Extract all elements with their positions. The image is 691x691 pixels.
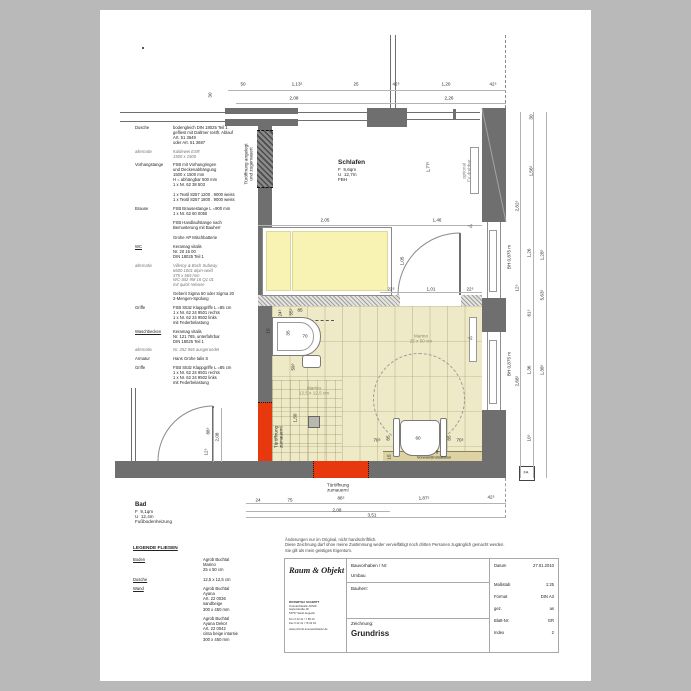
spec-section: VorhangstangeFSB mit Vorhangringenund De… — [135, 163, 255, 202]
spec-label: WC — [135, 245, 173, 260]
dim-label: 12⁵ — [515, 284, 520, 291]
dim-line — [221, 408, 222, 462]
project-value: Umbau — [351, 573, 366, 578]
legend-row: WandAgrob BuchtalAyanaArt. 22 0036sandbe… — [133, 586, 253, 612]
dim-label: 5,63⁵ — [540, 290, 545, 301]
spec-section: GriffeFSB Stütz Klappgriffe L =85 cm1 x … — [135, 366, 255, 386]
dim-label: 75 — [287, 498, 292, 503]
wall-top-upper — [225, 108, 298, 114]
spec-column: Duschebodengleich DIN 18025 Teil 1geflie… — [135, 126, 255, 390]
dim-label: 1,20 — [442, 82, 451, 87]
bricked-door-hatch — [257, 130, 273, 188]
dim-label: 1,36 — [527, 366, 532, 375]
dim-label: 2,26 — [445, 96, 454, 101]
dim-label: 61⁵ — [527, 309, 532, 316]
dim-label: 88⁵ — [337, 496, 344, 501]
dim-label: 85 — [447, 435, 452, 440]
wall-red-close-door-south — [313, 461, 369, 478]
spec-section: Geberit Sigma 50 oder Sigma 202-Mengen-S… — [135, 292, 255, 302]
tile-legend: LEGENDE FLIESEN BodenAgrob BuchtalMarino… — [133, 546, 253, 646]
spec-value: Nr. 252 065 ausgerundet — [173, 348, 255, 353]
dim-label: 1,46 — [433, 218, 442, 223]
dim-label: 1,05 — [400, 257, 405, 266]
dim-label: 15 — [266, 328, 271, 333]
spec-section: BrauseFSB Brausestange L =900 mm1 x Nr. … — [135, 207, 255, 241]
title-block: Raum & Objekt ROSWITHA SCHMITTInnenarchi… — [284, 558, 559, 653]
dim-label: 3,51 — [368, 513, 377, 518]
corridor-thin-wall — [135, 388, 136, 461]
dim-label: 1,38⁵ — [540, 365, 545, 376]
dim-label: 55⁵ — [289, 308, 294, 315]
spec-value: bodengleich DIN 18025 Teil 1gefliest mit… — [173, 126, 255, 146]
dim-label: 59⁵ — [291, 363, 296, 370]
window-line — [298, 112, 367, 113]
firm-logo: Raum & Objekt — [289, 565, 344, 575]
window-mullion — [453, 109, 456, 120]
dim-label: 12⁵ — [204, 448, 209, 455]
new-wall-hatched-right — [461, 295, 482, 306]
spec-label: Griffe — [135, 366, 173, 386]
new-wall-hatched-left — [258, 295, 400, 306]
dim-line — [246, 503, 506, 504]
spec-value: FSB Brausestange L =900 mm1 x Nr. 62 60 … — [173, 207, 255, 241]
wall-diagonal-mark — [482, 108, 506, 222]
wc-grab-bar-left — [393, 418, 400, 457]
spec-label: Griffe — [135, 306, 173, 326]
dim-label: 24⁵ — [278, 309, 283, 316]
legend-title: LEGENDE FLIESEN — [133, 546, 253, 551]
drawing-label: Zeichnung: — [351, 621, 373, 626]
floor-drain — [308, 416, 320, 428]
spec-value: Hans Grohe talis S — [173, 357, 255, 362]
page-mark-dot — [142, 47, 144, 49]
spec-value: FSB mit Vorhangringenund Deckenabhängung… — [173, 163, 255, 202]
wall-line — [120, 121, 225, 122]
dim-label: BH 0,875 m — [507, 352, 512, 376]
wall-stub-above — [390, 35, 391, 108]
spec-section: alternativKaldewei ESR1500 x 1500 — [135, 150, 255, 160]
construction-dashed-line — [505, 478, 506, 518]
wall-stub-above — [395, 35, 396, 108]
dim-label: 60 — [415, 436, 420, 441]
bed-mattress — [292, 231, 388, 291]
window-leaf — [489, 340, 497, 404]
wall-pillar-top — [367, 108, 407, 127]
project-label: Bauvorhaben / Nr: — [351, 563, 388, 568]
legend-row: Agrob BuchtalAyana DekorArt. 22 0042cint… — [133, 616, 253, 642]
spec-value: Kaldewei ESR1500 x 1500 — [173, 150, 255, 160]
plan-note: Marino 25 x 50 cm — [410, 334, 432, 345]
dim-label: 30 — [529, 114, 534, 119]
window-line — [407, 112, 480, 113]
spec-value: Villeroy & Boch Subway6600 1001 alpin-we… — [173, 264, 255, 289]
bed-pillow — [266, 231, 291, 291]
dim-label: 25 — [353, 82, 358, 87]
dim-label: 22⁵ — [387, 287, 394, 292]
spec-label: alternativ — [135, 348, 173, 353]
title-block-field: Blatt-Nr:GR — [490, 618, 558, 623]
dim-label: 88⁵ — [206, 427, 211, 434]
plan-note: Vorwandinstallation — [417, 454, 451, 459]
room-name: Schlafen — [338, 159, 365, 167]
wall-top-lower — [225, 119, 298, 126]
dim-label: 1,13⁵ — [292, 82, 303, 87]
washbasin-bowl — [277, 322, 314, 351]
dim-line — [258, 225, 482, 226]
spec-label: Brause — [135, 207, 173, 241]
wall-south-band — [115, 461, 506, 478]
drawing-canvas: Schlafen F 9,6qm U 12,7m FBH Bad F 9,1qm… — [0, 0, 691, 691]
dim-label: 50 — [240, 82, 245, 87]
title-block-field: FormatDIN A3 — [490, 594, 558, 599]
plan-note: Marino 12,5 x 12,5 cm — [299, 386, 329, 397]
plan-note: Türöffnung zumauern! — [274, 426, 285, 448]
window-line — [500, 222, 501, 298]
dim-label: 70 — [302, 334, 307, 339]
plan-note: optional TV drehbar — [462, 160, 473, 183]
plan-note: Türöffnung zumauern! — [327, 483, 349, 494]
dim-label: 30 — [208, 92, 213, 97]
window-line — [298, 120, 367, 121]
spec-label: alternativ — [135, 150, 173, 160]
wall-line — [120, 112, 225, 113]
firm-address: ROSWITHA SCHMITTInnenarchitektin AKNWGar… — [289, 601, 328, 632]
drawing-title: Grundriss — [351, 629, 389, 638]
title-block-project: Bauvorhaben / Nr: Umbau Bauherr: Zeichnu… — [346, 559, 489, 652]
legend-row: BodenAgrob BuchtalMarino25 x 50 cm — [133, 557, 253, 573]
spec-value: FSB Stütz Klappgriffe L =85 cm1 x Nr. 62… — [173, 366, 255, 386]
dim-label: 1,28⁵ — [540, 250, 545, 261]
dim-label: 1,56⁵ — [529, 166, 534, 177]
title-block-field: gez.as — [490, 606, 558, 611]
spec-label: Waschbecken — [135, 330, 173, 345]
dim-label: 24 — [255, 498, 260, 503]
window-line — [487, 332, 488, 410]
paper-holder — [302, 355, 321, 368]
window-line — [487, 222, 488, 298]
window-line — [407, 119, 480, 120]
legend-row: Dusche12,5 x 12,5 cm — [133, 577, 253, 582]
disclaimer-text: Änderungen nur im Original, nicht handsc… — [285, 537, 557, 553]
spec-value: Keramag vitalisNr. 20 15 00DIN 18025 Tei… — [173, 245, 255, 260]
spec-label: Dusche — [135, 126, 173, 146]
title-block-divider — [346, 582, 489, 583]
corridor-thin-wall — [131, 388, 132, 461]
dim-label: 70⁵ — [373, 438, 380, 443]
spec-value: Keramag vitalisNr. 121 765, unterfahrbar… — [173, 330, 255, 345]
dim-label: 85 — [386, 435, 391, 440]
dim-label: 2,08 — [215, 433, 220, 442]
window-line — [500, 332, 501, 410]
dim-label: 15 — [387, 454, 392, 459]
room-note: Fußbodenheizung — [135, 519, 172, 524]
dim-label: ~2 — [467, 336, 472, 341]
dim-line — [546, 112, 547, 478]
plan-note: FA — [524, 469, 529, 474]
spec-section: alternativVilleroy & Boch Subway6600 100… — [135, 264, 255, 289]
spec-value: FSB Stütz Klappgriffe L =85 cm1 x Nr. 62… — [173, 306, 255, 326]
dim-label: 1,77⁵ — [426, 162, 431, 173]
window-leaf — [489, 230, 497, 292]
wall-east-bottom — [482, 410, 506, 463]
dim-label: 42⁵ — [487, 495, 494, 500]
dim-label: 1,87⁵ — [419, 496, 430, 501]
room-note: FBH — [338, 177, 365, 182]
spec-section: alternativNr. 252 065 ausgerundet — [135, 348, 255, 353]
dim-line — [236, 103, 506, 104]
dim-label: 35 — [286, 330, 291, 335]
spec-value: Geberit Sigma 50 oder Sigma 202-Mengen-S… — [173, 292, 255, 302]
client-label: Bauherr: — [351, 586, 368, 591]
dim-label: 2,08 — [333, 508, 342, 513]
spec-section: Duschebodengleich DIN 18025 Teil 1geflie… — [135, 126, 255, 146]
dim-line — [380, 292, 482, 293]
dim-label: 22⁵ — [466, 287, 473, 292]
spec-label: Armatur — [135, 357, 173, 362]
dim-label: ~2 — [467, 224, 472, 229]
spec-label: Vorhangstange — [135, 163, 173, 202]
construction-dashed-line — [505, 35, 506, 108]
dim-label: 1,26 — [527, 249, 532, 258]
dim-label: 2,82⁵ — [515, 201, 520, 212]
dim-label: 10⁵ — [527, 434, 532, 441]
wall-red-close-door-west — [258, 402, 272, 463]
dim-label: 85 — [297, 308, 302, 313]
spec-section: WCKeramag vitalisNr. 20 15 00DIN 18025 T… — [135, 245, 255, 260]
dim-label: 42⁵ — [489, 82, 496, 87]
dim-line — [520, 112, 521, 478]
dim-label: BH 0,875 m — [507, 245, 512, 269]
dim-label: 2,05 — [321, 218, 330, 223]
dim-label: 70⁵ — [456, 438, 463, 443]
spec-label — [135, 292, 173, 302]
dim-label: 2,68⁵ — [515, 376, 520, 387]
dim-line — [228, 90, 506, 91]
wall-east-mid — [482, 298, 506, 332]
spec-section: WaschbeckenKeramag vitalisNr. 121 765, u… — [135, 330, 255, 345]
spec-section: GriffeFSB Stütz Klappgriffe L =85 cm1 x … — [135, 306, 255, 326]
title-block-divider — [346, 618, 489, 619]
room-label-schlafen: Schlafen F 9,6qm U 12,7m FBH — [338, 159, 365, 182]
room-name: Bad — [135, 502, 172, 509]
spec-section: ArmaturHans Grohe talis S — [135, 357, 255, 362]
dim-label: 1,01 — [427, 287, 436, 292]
dim-label: 1,50 — [293, 414, 298, 423]
dim-label: 2,08 — [290, 96, 299, 101]
title-block-field: Datum27.01.2010 — [490, 563, 558, 568]
room-label-bad: Bad F 9,1qm U 12,4m Fußbodenheizung — [135, 502, 172, 524]
dim-label: 42⁵ — [392, 82, 399, 87]
title-block-fields: Datum27.01.2010Maßstab1:25FormatDIN A3ge… — [489, 559, 558, 652]
title-block-firm: Raum & Objekt ROSWITHA SCHMITTInnenarchi… — [285, 559, 347, 652]
spec-label: alternativ — [135, 264, 173, 289]
title-block-field: Index2 — [490, 630, 558, 635]
title-block-field: Maßstab1:25 — [490, 582, 558, 587]
